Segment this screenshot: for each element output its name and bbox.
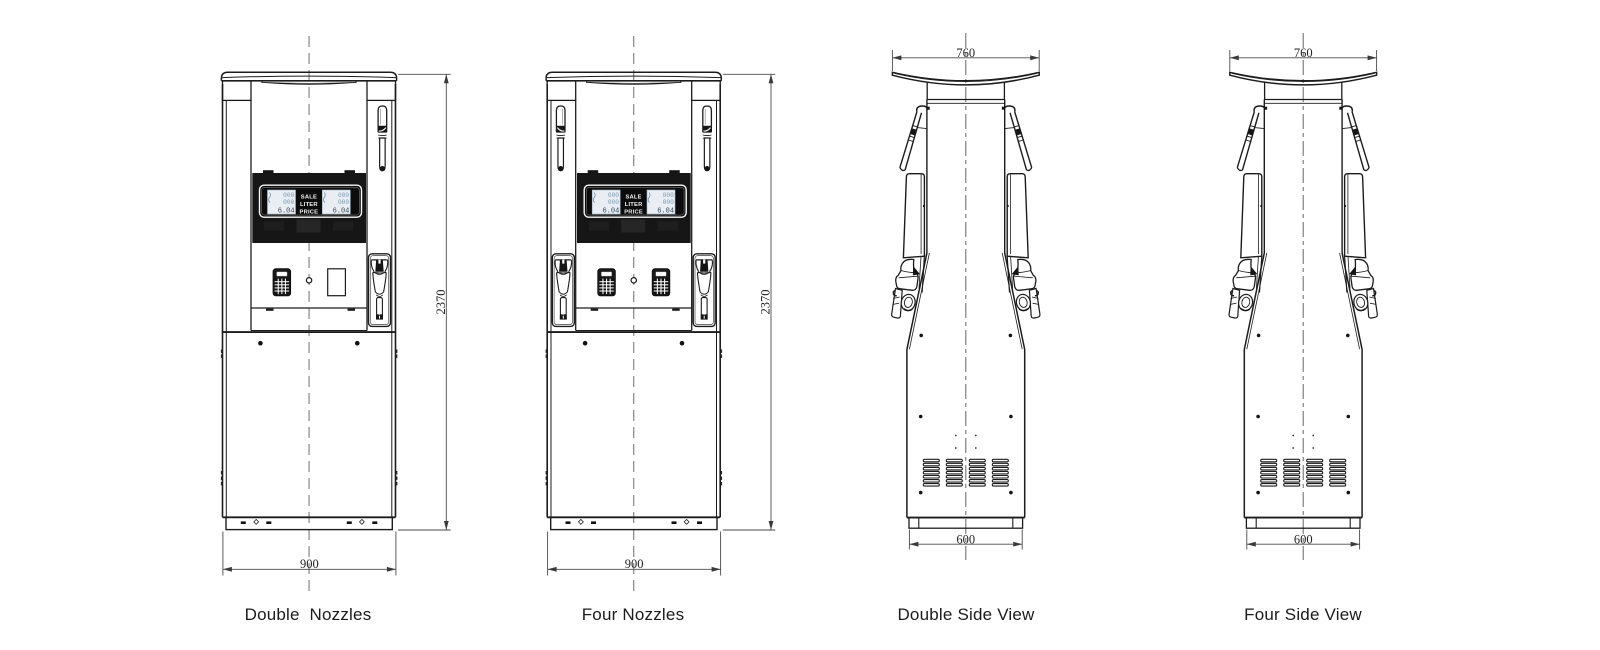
svg-text:6.04: 6.04 <box>333 208 350 216</box>
svg-text:000: 000 <box>283 192 294 199</box>
svg-text:000: 000 <box>283 199 294 206</box>
svg-text:000: 000 <box>338 199 349 206</box>
svg-text:SALE: SALE <box>301 195 317 201</box>
svg-text:6.04: 6.04 <box>278 208 295 216</box>
svg-text:LITER: LITER <box>300 202 318 208</box>
svg-text:PRICE: PRICE <box>300 209 319 215</box>
svg-text:000: 000 <box>338 192 349 199</box>
